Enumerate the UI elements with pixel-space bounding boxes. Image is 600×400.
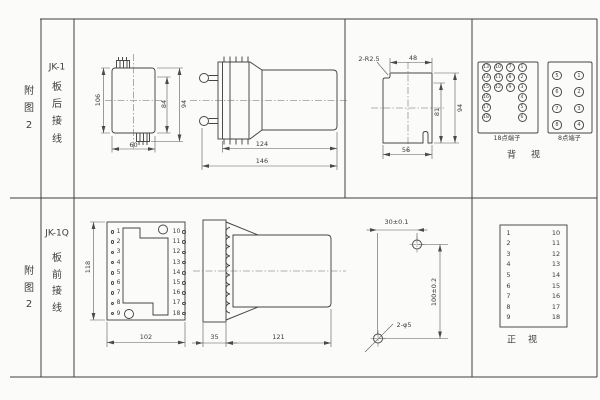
terminal-map-right: 17 <box>552 303 560 310</box>
terminal-number-right: 15 <box>173 280 181 286</box>
row2-wiring-char: 接 <box>52 287 62 297</box>
terminal-map-left: 3 <box>506 250 510 257</box>
terminal-screw-circle <box>111 271 115 275</box>
terminal-8-circle: 7 <box>552 104 562 114</box>
terminal-18-circle: 3 <box>518 83 527 92</box>
terminal-map-left: 1 <box>506 229 510 236</box>
dim-94-cutout: 94 <box>456 104 463 112</box>
terminal-number-right: 16 <box>173 290 181 296</box>
terminal-18-circle: 11 <box>494 73 503 82</box>
dim-102: 102 <box>140 334 152 341</box>
terminal-screw-circle <box>182 251 186 255</box>
row1-wiring-char: 接 <box>52 117 62 127</box>
terminal-map-right: 14 <box>552 272 560 279</box>
dim-30: 30±0.1 <box>384 218 408 225</box>
dim-121: 121 <box>272 334 284 341</box>
terminal-8-circle: 1 <box>574 71 584 81</box>
row1-model-label: JK-1 <box>49 64 66 73</box>
terminal-18-circle: 2 <box>518 73 527 82</box>
jk1-side-view-drawing <box>190 57 348 171</box>
terminal-map-left: 8 <box>506 303 510 310</box>
terminal-screw-circle <box>182 291 186 295</box>
terminal-18-circle: 15 <box>482 83 491 92</box>
terminal-number-left: 9 <box>117 311 121 317</box>
row1-wiring-char: 线 <box>52 135 62 145</box>
terminal-number-right: 17 <box>173 300 181 306</box>
terminal-screw-circle <box>182 230 186 234</box>
terminal-screw-circle <box>111 291 115 295</box>
dim-56: 56 <box>402 147 410 154</box>
terminal-map-right: 10 <box>552 229 560 236</box>
terminal-18-circle: 1 <box>518 63 527 72</box>
terminal-number-right: 14 <box>173 270 181 276</box>
dim-94: 94 <box>180 100 187 108</box>
terminals8-label: 8点端子 <box>558 136 581 142</box>
terminal-map-right: 13 <box>552 261 560 268</box>
dim-118: 118 <box>85 261 92 273</box>
terminal-18-circle: 16 <box>482 93 491 102</box>
dim-100: 100±0.2 <box>430 277 437 305</box>
terminal-18-circle: 18 <box>482 113 491 122</box>
terminal-map-left: 4 <box>506 261 510 268</box>
terminal-number-right: 12 <box>173 249 181 255</box>
dim-106: 106 <box>94 94 101 106</box>
row2-figure-char: 附 <box>24 267 34 277</box>
terminal-8-circle: 5 <box>552 71 562 81</box>
terminal-18-circle: 9 <box>506 83 515 92</box>
terminal-18-circle: 8 <box>506 73 515 82</box>
terminal-map-right: 18 <box>552 314 560 321</box>
terminal-number-left: 1 <box>117 229 121 235</box>
terminal-number-right: 13 <box>173 260 181 266</box>
row2-model-label: JK-1Q <box>45 230 69 239</box>
terminal-number-left: 5 <box>117 270 121 276</box>
dim-81: 81 <box>434 108 441 116</box>
jk1-front-view-drawing <box>101 54 183 153</box>
dim-146: 146 <box>256 158 268 165</box>
jk1q-side-view-drawing <box>192 220 346 347</box>
terminal-screw-circle <box>182 271 186 275</box>
appendix-figure-table: 附 图 2 JK-1 板 后 接 线 106 84 94 60 124 146 … <box>0 0 600 400</box>
terminal-8-circle: 2 <box>574 87 584 97</box>
terminal-map-left: 9 <box>506 314 510 321</box>
terminal-map-right: 11 <box>552 240 560 247</box>
row2-figure-char: 图 <box>24 284 34 294</box>
back-view-char: 背 <box>507 152 517 161</box>
terminal-screw-circle <box>111 281 115 285</box>
terminal-number-left: 2 <box>117 239 121 245</box>
terminal-8-circle: 3 <box>574 104 584 114</box>
terminal-18-circle: 10 <box>494 63 503 72</box>
row1-wiring-char: 后 <box>52 100 62 110</box>
terminal-screw-circle <box>111 230 115 234</box>
row1-figure-char: 附 <box>24 87 34 97</box>
terminal-map-left: 7 <box>506 293 510 300</box>
terminal-screw-circle <box>182 281 186 285</box>
dim-60: 60 <box>129 142 137 149</box>
terminal-map-right: 15 <box>552 282 560 289</box>
row1-wiring-char: 板 <box>52 83 62 93</box>
terminal-map-left: 5 <box>506 272 510 279</box>
jk1-panel-cutout-drawing <box>371 58 459 159</box>
row2-wiring-char: 线 <box>52 304 62 314</box>
terminal-screw-circle <box>111 240 115 244</box>
terminal-number-left: 7 <box>117 290 121 296</box>
terminal-screw-circle <box>182 302 186 306</box>
terminal-18-circle: 6 <box>518 113 527 122</box>
terminal-18-circle: 4 <box>518 93 527 102</box>
terminal-number-left: 4 <box>117 260 121 266</box>
terminal-18-circle: 5 <box>518 103 527 112</box>
row2-wiring-char: 前 <box>52 271 62 281</box>
dim-48: 48 <box>409 54 417 61</box>
terminal-18-circle: 17 <box>482 103 491 112</box>
dim-hole-label: 2-φ5 <box>397 321 412 328</box>
dim-35: 35 <box>210 334 218 341</box>
terminal-number-left: 6 <box>117 280 121 286</box>
dim-84: 84 <box>160 100 167 108</box>
terminal-18-circle: 12 <box>494 83 503 92</box>
terminal-screw-circle <box>182 240 186 244</box>
row1-figure-char: 图 <box>24 104 34 114</box>
terminal-map-left: 2 <box>506 240 510 247</box>
terminal-number-left: 3 <box>117 249 121 255</box>
dim-124: 124 <box>256 140 268 147</box>
dim-radius-label: 2-R2.5 <box>358 55 379 62</box>
row1-figure-char: 2 <box>26 121 32 131</box>
terminal-number-right: 10 <box>173 229 181 235</box>
terminals18-label: 18点端子 <box>494 136 521 142</box>
row2-wiring-char: 板 <box>52 254 62 264</box>
terminal-map-right: 16 <box>552 293 560 300</box>
row2-figure-char: 2 <box>26 300 32 310</box>
back-view-char: 视 <box>531 152 541 161</box>
front-view-char: 视 <box>528 337 538 346</box>
terminal-8-circle: 6 <box>552 87 562 97</box>
terminal-number-right: 18 <box>173 311 181 317</box>
terminal-number-right: 11 <box>173 239 181 245</box>
terminal-8-circle: 4 <box>574 120 584 130</box>
terminal-18-circle: 13 <box>482 63 491 72</box>
terminal-map-right: 12 <box>552 250 560 257</box>
terminal-18-circle: 7 <box>506 63 515 72</box>
jk1q-front-view-drawing <box>90 222 185 347</box>
terminal-map-left: 6 <box>506 282 510 289</box>
terminal-number-left: 8 <box>117 300 121 306</box>
terminal-8-circle: 8 <box>552 120 562 130</box>
terminal-18-circle: 14 <box>482 73 491 82</box>
front-view-char: 正 <box>507 337 517 346</box>
